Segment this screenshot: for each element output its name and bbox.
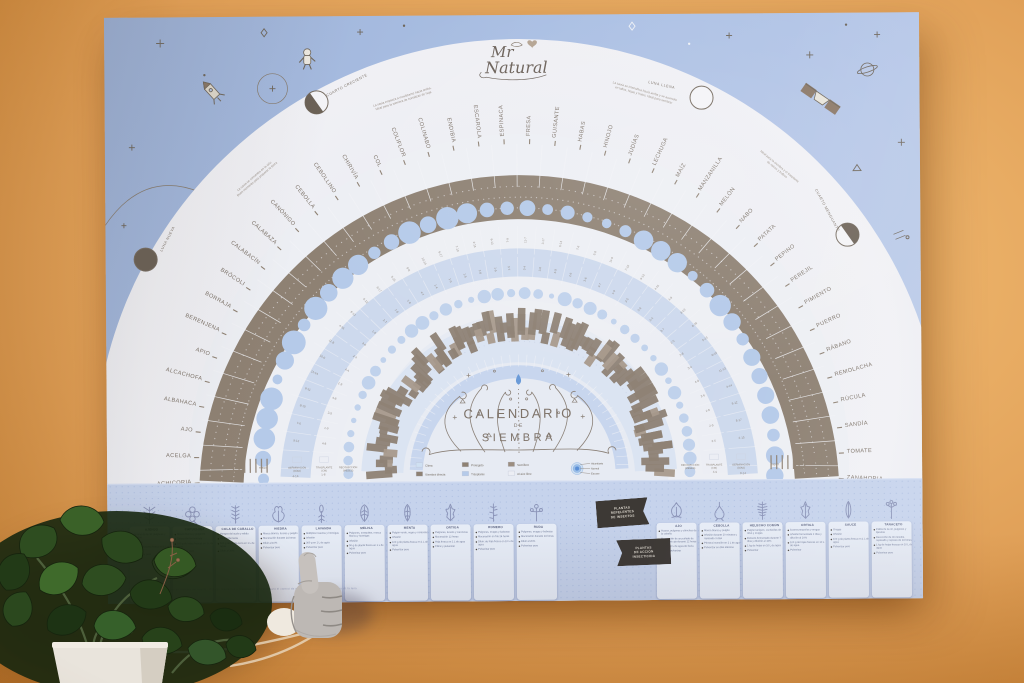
remedy-bullet: Pulgones, orugas y babosas <box>476 530 514 533</box>
bullet-dot <box>390 549 392 551</box>
bullet-text: Pulverizar en días alternos <box>704 546 734 549</box>
plant-name: ROMERO <box>476 525 515 529</box>
watering-dot <box>582 212 592 222</box>
watering-dot <box>457 203 477 223</box>
watering-level-label: Normal <box>591 467 600 470</box>
harvest-dot <box>370 366 381 377</box>
moon-full-icon <box>690 86 713 109</box>
watering-dot <box>384 234 400 250</box>
bullet-dot <box>788 542 790 544</box>
plant-icon <box>665 500 687 522</box>
astronaut-icon <box>299 49 315 70</box>
watering-dot <box>542 204 553 215</box>
plant-icon <box>837 499 859 521</box>
ring-value: 4-8 <box>322 441 327 445</box>
plant-name: MELISA <box>347 526 386 530</box>
remedy-bullet: Pulverizar puro <box>519 544 557 547</box>
brand-line2: Natural <box>484 58 548 77</box>
remedy-bullet: Ácaros pequeños y orugas <box>788 528 826 531</box>
bullet-dot <box>874 544 876 546</box>
remedy-bullet: Pulverizar puro <box>831 545 869 548</box>
bullet-text: Diluir: de hoja fresca en 10 L de agua <box>478 540 514 547</box>
remedy-bullet: Pulverizar puro <box>390 548 428 551</box>
bullet-text: Infusión <box>833 533 842 536</box>
harvest-dot <box>380 357 386 363</box>
plant-name: ORTIGA <box>788 523 827 527</box>
bullet-dot <box>519 541 521 543</box>
harvest-dot <box>351 418 356 423</box>
watering-dot <box>634 230 654 250</box>
harvest-dot <box>454 300 462 308</box>
ring-value: 3-15 <box>738 435 745 440</box>
sowing-month-bar <box>643 444 672 448</box>
ring-swatch <box>345 457 351 463</box>
bullet-text: Pulverizar puro <box>876 551 893 554</box>
ring-value: 11-7 <box>523 237 527 243</box>
watering-dot <box>767 429 780 442</box>
bullet-dot <box>788 534 790 536</box>
title-siembra: SIEMBRA <box>482 432 556 445</box>
bullet-dot <box>874 552 876 554</box>
legend-label: Siembra directa <box>425 472 446 476</box>
harvest-dot <box>358 391 366 399</box>
harvest-dot <box>597 309 607 319</box>
watering-dot <box>602 219 612 229</box>
bullet-text: Diluir al 20% <box>521 540 535 543</box>
bullet-dot <box>347 533 349 535</box>
remedy-bullet: Infusión durante 20 minutos y reposado 3… <box>702 534 740 541</box>
bullet-text: Primera inversión en 2 L de agua <box>704 541 740 544</box>
bullet-dot <box>874 537 876 539</box>
remedy-bullet: Orugas <box>831 528 869 531</box>
bullet-dot <box>390 532 392 534</box>
harvest-dot <box>572 298 582 308</box>
watering-dot <box>619 225 631 237</box>
bullet-dot <box>519 545 521 547</box>
bullet-text: Infusión fermentada 2 días y dilución al… <box>790 533 826 540</box>
harvest-dot <box>397 336 405 344</box>
bullet-dot <box>476 541 478 543</box>
bullet-dot <box>433 541 435 543</box>
bullet-text: Pulverizar <box>790 549 801 552</box>
bullet-text: Mosca blanca y pulgón <box>704 529 730 532</box>
watering-dot <box>253 428 275 450</box>
bullet-dot <box>519 531 521 533</box>
watering-dot <box>651 241 671 261</box>
bullet-text: Ácaros pequeños y orugas <box>790 528 820 531</box>
harvest-dot <box>468 297 474 303</box>
harvest-dot <box>650 355 656 361</box>
bullet-dot <box>831 539 833 541</box>
harvest-dot <box>491 288 504 301</box>
ring-value: 3-6 <box>711 439 716 444</box>
bullet-text: Decocción de 30 minutos, reposado y repr… <box>876 535 912 542</box>
harvest-dot <box>405 324 418 337</box>
bullet-dot <box>433 532 435 534</box>
legend-label: Semillero <box>517 463 529 467</box>
bullet-dot <box>659 530 661 532</box>
harvest-dot <box>388 345 396 353</box>
repellents-ribbon: PLANTAS REPELENTES DE INSECTOS <box>595 497 649 528</box>
harvest-dot <box>630 334 639 343</box>
harvest-dot <box>440 303 452 315</box>
remedy-bullet: Pulverizar <box>745 549 783 552</box>
rocket-icon <box>198 77 226 106</box>
harvest-dot <box>683 439 695 451</box>
bullet-dot <box>702 547 704 549</box>
legend-swatch <box>462 462 469 467</box>
comet-icon <box>893 230 905 239</box>
bullet-dot <box>433 537 435 539</box>
sowing-month-bar <box>615 366 621 372</box>
sowing-month-bar <box>641 461 669 462</box>
harvest-dot <box>611 319 617 325</box>
harvest-dot <box>533 289 543 299</box>
bullet-dot <box>788 530 790 532</box>
remedy-bullet: 100 g de planta fresca en 1 L de agua <box>831 537 869 544</box>
legend-swatch <box>416 463 423 468</box>
watering-dot <box>757 387 774 404</box>
bullet-text: Pulgón verde, negro y caracoles <box>392 531 428 534</box>
plant-icon <box>708 499 730 521</box>
photo-scene: Mr Natural ACHICORIAACELGAAJOALBAHACAALC… <box>0 0 1024 683</box>
bullet-text: Extracto fermentado durante 7 días y dil… <box>747 536 783 543</box>
sowing-month-bar <box>654 472 675 474</box>
harvest-dot <box>641 344 648 351</box>
sowing-month-bar <box>521 314 522 335</box>
bullet-dot <box>745 545 747 547</box>
ring-label: TIPO DESIEMBRA <box>215 467 227 473</box>
bullet-text: Filtrar y pulverizar <box>435 545 455 548</box>
watering-dot <box>561 206 575 220</box>
sowing-month-bar <box>399 389 407 394</box>
bullet-text: Infusión durante 20 minutos y reposado 3… <box>704 534 740 541</box>
bullet-text: Pulverizar puro <box>392 548 409 551</box>
plant-name: ORTIGA <box>433 526 472 530</box>
watering-dot <box>260 387 283 410</box>
harvest-dot <box>415 316 429 330</box>
flower-pot <box>52 642 168 683</box>
sowing-month-bar <box>542 310 547 334</box>
ring-value: 4-14 <box>292 474 299 478</box>
sowing-month-bar <box>498 317 502 342</box>
label-tick <box>555 141 556 146</box>
bullet-text: Hoja fresca en 1 L de agua <box>435 540 465 543</box>
bullet-text: 100 g de hojas frescas en 10 L de agua <box>790 541 826 548</box>
bullet-dot <box>390 542 392 544</box>
legend-label: Clima <box>425 464 433 468</box>
bullet-dot <box>476 532 478 534</box>
ring-value: 4-9 <box>713 470 718 474</box>
legend-swatch <box>416 472 423 477</box>
ring-label: TIPO DESIEMBRA <box>811 463 823 469</box>
harvest-dot <box>665 377 672 384</box>
ring-value: 3-17 <box>541 238 546 245</box>
harvest-dot <box>558 292 572 306</box>
bullet-text: Polilla de la col, pulgones y tijeretas <box>876 528 912 535</box>
remedy-bullet: Pulgón lanígero, cochinillas de olivo y … <box>745 529 783 536</box>
harvest-dot <box>549 293 554 298</box>
vegetable-label: TOMATE <box>847 448 872 455</box>
remedy-bullet: Hoja fresca en 1 L de agua <box>433 540 471 543</box>
harvest-dot <box>655 362 668 375</box>
bullet-dot <box>702 530 704 532</box>
remedy-bullet: Infusión <box>347 539 385 542</box>
harvest-dot <box>507 289 515 297</box>
sowing-month-bar <box>366 474 392 476</box>
bullet-text: Pulgones, orugas y babosas <box>478 531 510 534</box>
bullet-text: 100 g de planta fresca en 1 L de agua <box>392 540 428 547</box>
harvest-dot <box>584 302 597 315</box>
ring-swatch <box>710 454 719 460</box>
bullet-dot <box>788 550 790 552</box>
watering-dot <box>320 284 338 302</box>
bullet-dot <box>831 546 833 548</box>
remedy-bullet: 100 g de planta fresca en 1 L de agua <box>390 540 428 547</box>
watering-dot <box>700 283 715 298</box>
watering-dot <box>709 295 731 317</box>
harvest-dot <box>478 290 491 303</box>
plant-name: SAUCE <box>831 523 870 527</box>
remedy-bullet: Maceración durante 24 horas <box>519 535 557 538</box>
watering-dot <box>751 368 767 384</box>
watering-level-label: Abundante <box>591 462 604 465</box>
plant-icon <box>880 498 902 520</box>
bullet-text: Pulverizar puro <box>833 545 850 548</box>
label-tick <box>478 142 479 147</box>
plant-icon <box>525 501 547 523</box>
watering-dot <box>273 374 283 384</box>
harvest-dot <box>362 376 376 390</box>
bullet-dot <box>831 529 833 531</box>
ring-label: RIEGO <box>259 467 267 470</box>
bullet-text: Pulverizar puro <box>478 548 495 551</box>
watering-dot <box>743 349 760 366</box>
bullet-dot <box>390 537 392 539</box>
remedy-bullet: Extracto fermentado durante 7 días y dil… <box>745 536 783 543</box>
harvest-dot <box>668 386 681 399</box>
star-icon <box>269 86 275 92</box>
plant-name: MENTA <box>390 526 429 530</box>
bullet-text: Pulverizar puro <box>521 544 538 547</box>
plant-icon <box>794 499 816 521</box>
sowing-month-bar <box>384 453 398 454</box>
plant-icon <box>310 502 332 524</box>
ring-swatch <box>737 454 746 460</box>
remedy-bullet: Pulgones, orugas y babosas <box>519 530 557 533</box>
bullet-dot <box>745 550 747 552</box>
ring-swatch <box>260 457 266 463</box>
watering-dot <box>519 200 535 216</box>
watering-dot <box>304 297 327 320</box>
ring-swatch <box>687 454 693 460</box>
planet-icon <box>857 63 879 76</box>
sowing-month-bar <box>582 337 587 346</box>
bullet-dot <box>519 536 521 538</box>
harvest-dot <box>620 325 629 334</box>
watering-dot <box>348 255 368 275</box>
sowing-month-bar <box>485 312 489 331</box>
sowing-month-bar <box>380 430 388 432</box>
sowing-month-bar <box>646 468 664 469</box>
remedy-bullet: Pulgones, ácaros y carencias <box>433 531 471 534</box>
harvest-dot <box>519 287 531 299</box>
watering-dot <box>256 408 278 430</box>
bullet-text: Pulgones, orugas y babosas <box>521 530 553 533</box>
watering-dot <box>480 203 495 218</box>
ring-value: 1-5 <box>507 266 511 271</box>
ring-swatch <box>217 457 226 463</box>
bullet-dot <box>831 534 833 536</box>
watering-dot <box>762 406 780 424</box>
plant-icon <box>751 499 773 521</box>
insecticide-ribbon: PLANTAS DE ACCIÓN INSECTICIDA <box>616 538 671 566</box>
remedy-bullet: Polilla de la col, pulgones y tijeretas <box>874 528 912 535</box>
remedy-bullet: Ácaros, pulgones y chinches de la ceboll… <box>659 529 697 536</box>
legend-swatch <box>508 471 515 476</box>
remedy-bullet: 1 kg de hojas frescas en 10 L de agua <box>874 543 912 550</box>
bullet-dot <box>476 549 478 551</box>
sowing-month-bar <box>451 349 456 357</box>
remedy-bullet: Diluir al 20% <box>519 539 557 542</box>
remedy-bullet: Filtrar y pulverizar <box>433 545 471 548</box>
legend-label: Al aire libre <box>517 472 532 476</box>
title-calendario: CALENDARIO <box>463 406 574 422</box>
watering-dot <box>298 319 311 332</box>
bullet-text: 100 g de planta fresca en 1 L de agua <box>833 537 869 544</box>
hand-shape <box>291 551 342 638</box>
ring-value: 9-12 <box>293 439 300 444</box>
harvest-dot <box>682 426 693 437</box>
bullet-text: 1 kg de hojas frescas en 10 L de agua <box>876 543 912 550</box>
vegetable-label: FRESA <box>526 115 533 136</box>
ring-swatch <box>293 457 302 463</box>
remedy-bullet: Infusión <box>390 536 428 539</box>
bullet-text: Orugas <box>833 528 841 531</box>
bullet-text: Infusión <box>349 539 358 542</box>
ring-label: RIEGO <box>771 463 779 466</box>
remedy-bullet: Pulgón verde, negro y caracoles <box>390 531 428 534</box>
plant-name: HELECHO COMÚN <box>745 524 784 528</box>
vegetable-label: ACELGA <box>166 453 191 459</box>
ring-value: 1-8 <box>321 472 326 476</box>
sowing-month-bar <box>376 440 390 443</box>
bullet-dot <box>702 543 704 545</box>
ring-value: 1-5 <box>493 267 498 272</box>
watering-dot <box>368 247 380 259</box>
bullet-text: Pulgones, ácaros y carencias <box>435 531 468 534</box>
ring-value: 3-4 <box>522 265 526 270</box>
title-de: DE <box>514 423 524 429</box>
ring-value: 7-9 <box>506 238 510 243</box>
sowing-month-bar <box>478 329 482 341</box>
sowing-month-bar <box>553 332 557 347</box>
bullet-text: Ácaros, pulgones y chinches de la ceboll… <box>661 529 697 536</box>
remedy-bullet: Maceración en frío 24 horas <box>476 535 514 538</box>
bullet-dot <box>745 538 747 540</box>
sowing-month-bar <box>367 447 387 450</box>
bullet-text: Maceración 12 horas <box>435 536 458 539</box>
watering-dot <box>436 207 459 230</box>
remedy-bullet: Infusión <box>831 533 869 536</box>
sowing-month-bar <box>531 312 533 334</box>
remedy-bullet: 100 g de hojas frescas en 10 L de agua <box>788 541 826 548</box>
label-tick <box>196 432 201 433</box>
sowing-month-bar <box>553 313 558 333</box>
watering-dot <box>420 216 437 233</box>
remedy-bullet: Pulverizar puro <box>476 547 514 550</box>
plant-name: TANACETO <box>874 523 913 527</box>
remedy-bullet: Pulgones, mosquitos, mosca blanca y horm… <box>347 531 385 538</box>
watering-dot <box>723 313 741 331</box>
remedy-bullet: Maceración 12 horas <box>433 535 471 538</box>
bullet-text: Pulgones, mosquitos, mosca blanca y horm… <box>349 531 385 538</box>
bullet-dot <box>476 536 478 538</box>
plant-name: RUDA <box>519 525 558 529</box>
watering-dot <box>667 253 687 273</box>
harvest-dot <box>344 442 355 453</box>
remedy-bullet: Pulverizar en días alternos <box>702 546 740 549</box>
bullet-text: Maceración en frío 24 horas <box>478 535 509 538</box>
ring-value: 3-6 <box>538 266 542 271</box>
thumbs-up-hand <box>262 544 367 656</box>
bullet-dot <box>347 540 349 542</box>
watering-dot <box>282 330 306 354</box>
remedy-bullet: Mosca blanca y pulgón <box>702 529 740 532</box>
watering-dot <box>736 333 748 345</box>
remedy-bullet: Pulverizar puro <box>874 551 912 554</box>
moon-new-icon <box>134 248 157 271</box>
sowing-month-bar <box>389 396 400 402</box>
plant-icon <box>482 501 504 523</box>
ring-value: 6-13 <box>490 238 495 245</box>
harvest-dot <box>676 402 683 409</box>
plant-name: AJO <box>659 524 698 528</box>
harvest-dot <box>679 413 689 423</box>
bullet-dot <box>433 546 435 548</box>
bullet-dot <box>702 535 704 537</box>
bullet-text: Pulverizar <box>747 549 758 552</box>
plant-icon <box>353 502 375 524</box>
harvest-dot <box>354 404 360 410</box>
bullet-text: 1 kg de hojas en 10 L de agua <box>747 544 781 547</box>
plant-icon <box>396 502 418 524</box>
watering-dot <box>688 271 698 281</box>
legend-label: Protegido <box>471 463 484 467</box>
repellents-ribbon-label: PLANTAS REPELENTES DE INSECTOS <box>609 506 636 520</box>
bullet-text: Maceración durante 24 horas <box>521 535 554 538</box>
bullet-dot <box>745 530 747 532</box>
watering-dot <box>276 351 294 369</box>
harvest-dot <box>347 430 354 437</box>
plant-name: CEBOLLA <box>702 524 741 528</box>
bullet-text: Pulgón lanígero, cochinillas de olivo y … <box>747 529 783 536</box>
remedy-bullet: 1 kg de hojas en 10 L de agua <box>745 544 783 547</box>
watering-dot <box>500 201 513 214</box>
ring-value: 8-14 <box>740 471 747 475</box>
ring-swatch <box>320 457 329 463</box>
plant-icon <box>439 501 461 523</box>
legend-swatch <box>508 462 515 467</box>
bullet-dot <box>874 529 876 531</box>
ring-swatch <box>813 453 822 459</box>
legend-label: Trasplante <box>471 472 485 476</box>
remedy-bullet: Diluir: de hoja fresca en 10 L de agua <box>476 540 514 547</box>
legend-swatch <box>462 471 469 476</box>
label-tick <box>837 427 842 428</box>
remedy-bullet: Pulverizar <box>788 548 826 551</box>
sowing-month-bar <box>641 434 661 438</box>
